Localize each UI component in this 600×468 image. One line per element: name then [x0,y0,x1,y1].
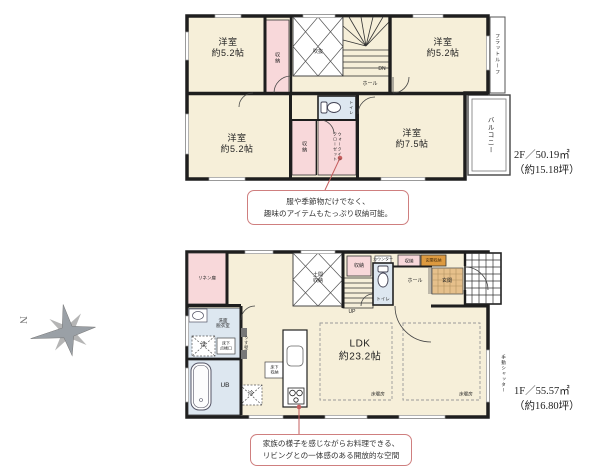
label-floor-heating-left: 床暖房 [371,391,385,396]
floor2-callout: 服や季節物だけでなく、 趣味のアイテムもたっぷり収納可能。 [247,190,409,225]
label-entry-storage: 玄関収納 [426,258,442,263]
callout-leader-lines [0,0,600,468]
floor1-callout: 家族の様子を感じながらお料理できる、 リビングとの一体感のある開放的な空間 [250,434,412,466]
room-label-bedroom-mid-right: 洋室 約7.5帖 [395,128,428,151]
label-doma-storage: 土間 収納 [313,272,323,285]
label-closet-mid: 収納 [301,141,307,153]
room-label-bedroom-mid-left: 洋室 約5.2帖 [220,133,253,156]
label-washer: 洗 [200,342,206,350]
label-linen: リネン庫 [198,275,216,280]
label-fridge: 冷 [248,391,254,399]
label-flat-roof: フラットルーフ [494,33,500,75]
label-manual-shutter: 手動シャッター [501,355,506,394]
label-stairs-dn: DN [378,66,385,72]
label-thin-wall: うす壁 [244,336,249,351]
label-toilet-1f: トイレ [376,296,390,301]
label-stairs-up: UP [349,309,356,315]
room-label-bedroom-top-left: 洋室 約5.2帖 [211,37,244,60]
label-hall-1f: ホール [407,278,422,284]
label-toilet-2f: トイレ [349,101,354,116]
label-walk-in-closet: ウォークイン クローゼット [332,132,341,162]
label-hall-2f: ホール [362,81,377,87]
floor1-area-label: 1F／55.57㎡ （約16.80坪） [514,384,580,414]
label-void: 吹抜 [313,49,323,55]
label-floor-heating-right: 床暖房 [459,391,473,396]
label-closet-hall: 収納 [405,258,414,263]
label-unit-bath: UB [220,382,229,390]
label-counter: カウンター [373,257,393,262]
label-closet-stairs: 収納 [354,263,364,269]
floorplan-page: 洋室 約5.2帖 洋室 約5.2帖 洋室 約5.2帖 洋室 約7.5帖 収納 収… [0,0,600,468]
label-underfloor-storage: 床下 収納 [271,365,279,374]
label-closet-top: 収納 [274,52,280,64]
floor2-area-label: 2F／50.19㎡ （約15.18坪） [514,148,580,178]
room-label-ldk: LDK 約23.2帖 [339,339,381,364]
room-label-bedroom-top-right: 洋室 約5.2帖 [426,37,459,60]
label-washroom: 洗面 脱衣室 [216,318,230,328]
label-underfloor-hatch: 床下 点検口 [220,341,232,350]
label-balcony: バルコニー [485,116,493,154]
label-genkan: 玄関 [442,278,452,284]
